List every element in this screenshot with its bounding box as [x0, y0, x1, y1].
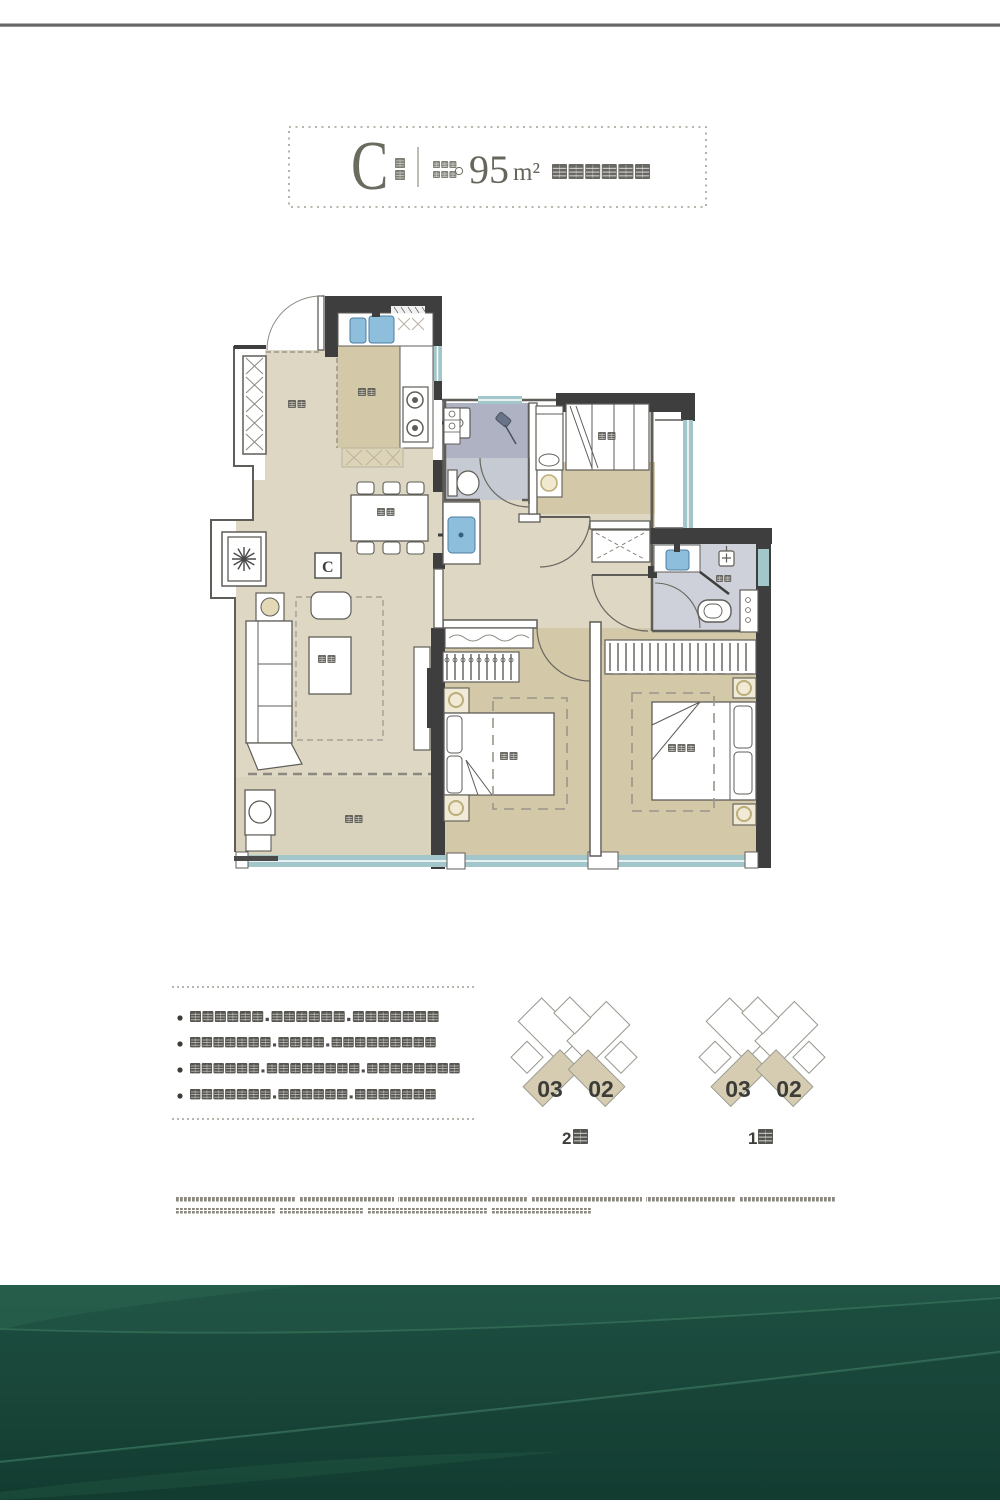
svg-text:C: C — [351, 127, 388, 204]
svg-text:03: 03 — [537, 1076, 563, 1102]
svg-text:02: 02 — [776, 1076, 802, 1102]
svg-text:m²: m² — [513, 159, 540, 186]
svg-text:C: C — [322, 559, 334, 576]
svg-text:03: 03 — [725, 1076, 751, 1102]
svg-text:1: 1 — [748, 1129, 757, 1148]
svg-text:02: 02 — [588, 1076, 614, 1102]
svg-text:2: 2 — [562, 1129, 571, 1148]
svg-text:95: 95 — [469, 147, 509, 192]
